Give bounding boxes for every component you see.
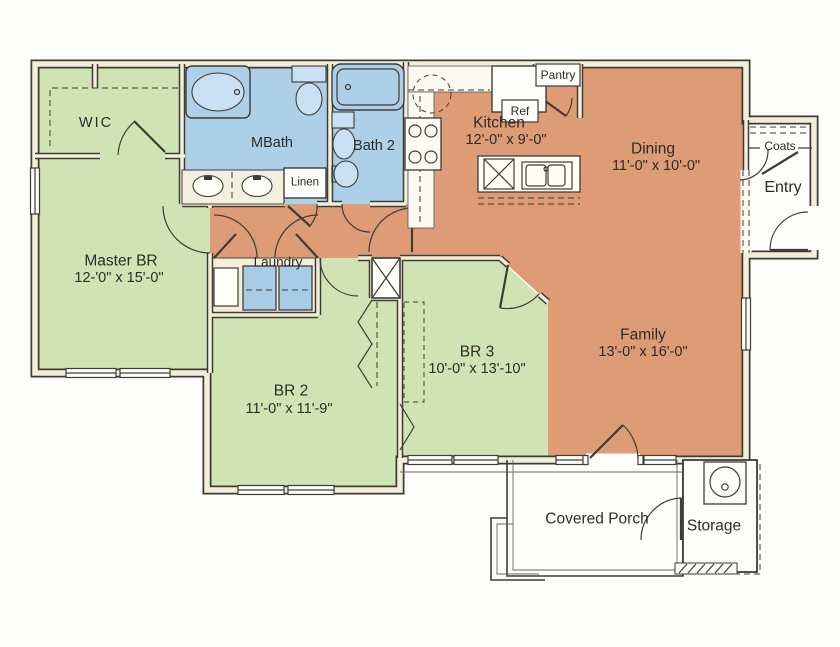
coats-label: Coats — [764, 140, 795, 152]
laundry-shelf — [214, 268, 238, 306]
mechanical-closet — [372, 258, 400, 298]
kitchen-dims: 12'-0" x 9'-0" — [465, 133, 546, 148]
entry-dining-opening — [741, 170, 752, 253]
entry-label: Entry — [764, 180, 801, 196]
pantry-label: Pantry — [541, 69, 576, 81]
wic-label: WIC — [79, 116, 113, 131]
covered-porch-label: Covered Porch — [545, 511, 648, 527]
floor-plan: WIC MBath Bath 2 Linen Kitchen 12'-0" x … — [0, 0, 840, 647]
dining-label: Dining — [631, 141, 675, 157]
mbath-tub — [186, 66, 250, 118]
laundry-fixtures — [214, 266, 312, 310]
linen-label: Linen — [291, 177, 319, 189]
kitchen-stove — [405, 118, 441, 170]
br2-dims: 11'-0" x 11'-9" — [245, 402, 332, 417]
dryer — [279, 266, 312, 310]
storage-sill-hatch — [675, 563, 737, 574]
laundry-label: Laundry — [254, 255, 303, 269]
room-wic-floor — [35, 64, 185, 156]
family-dims: 13'-0" x 16'-0" — [598, 345, 687, 360]
storage-label: Storage — [687, 518, 741, 534]
family-label: Family — [620, 327, 666, 343]
washer — [243, 266, 276, 310]
mbath-double-vanity — [182, 170, 284, 204]
br3-label: BR 3 — [460, 344, 494, 360]
bath2-toilet — [332, 112, 355, 159]
floor-plan-drawing — [0, 0, 840, 647]
mbath-label: MBath — [251, 136, 293, 151]
bath2-tub — [332, 64, 404, 110]
ref-label: Ref — [511, 105, 530, 117]
water-heater — [704, 462, 746, 504]
master-br-dims: 12-'0" x 15'-0" — [74, 271, 163, 286]
master-br-label: Master BR — [84, 253, 157, 269]
dining-dims: 11'-0" x 10'-0" — [612, 159, 700, 174]
bath2-label: Bath 2 — [353, 139, 395, 154]
br2-label: BR 2 — [274, 383, 308, 399]
br3-dims: 10'-0" x 13'-10" — [428, 362, 525, 377]
